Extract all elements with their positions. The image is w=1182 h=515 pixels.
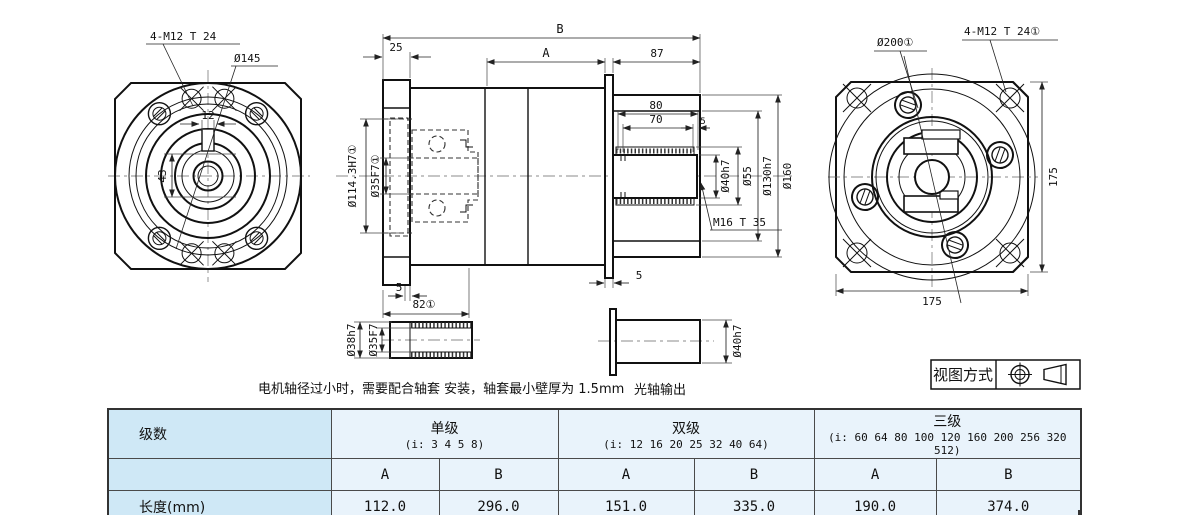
dim-keyway-width: 12 <box>201 109 214 122</box>
bushing-detail: Ø38h7 Ø35F7 <box>345 322 480 358</box>
front-diameter-callout: Ø145 <box>234 52 261 65</box>
dim-d40: Ø40h7 <box>719 159 732 192</box>
dim-d35-bushing: Ø35F7 <box>367 323 380 356</box>
note-text: 电机轴径过小时，需要配合轴套 安装，轴套最小壁厚为 1.5mm <box>258 381 624 397</box>
dim-5-disc: 5 <box>636 269 643 282</box>
view-method-label: 视图方式 <box>933 366 993 384</box>
dim-rear-length: 87 <box>650 47 663 60</box>
group-ratios: (i: 3 4 5 8) <box>333 438 557 451</box>
subheader-cell: B <box>439 459 558 491</box>
group-name: 双级 <box>560 418 813 438</box>
dim-mid-length: A <box>542 46 550 60</box>
group-ratios: (i: 12 16 20 25 32 40 64) <box>560 438 813 451</box>
dim-height-175: 175 <box>1047 167 1060 187</box>
dim-5-flange: 5 <box>396 281 403 294</box>
dim-d114: Ø114.3H7① <box>346 144 359 207</box>
dim-width-175: 175 <box>922 295 942 308</box>
dim-d130: Ø130h7 <box>761 156 774 196</box>
dim-d40-shaft: Ø40h7 <box>731 324 744 357</box>
hidden-internals <box>383 118 478 236</box>
technical-drawing-canvas: 12 43 4-M12 T 24 Ø145 <box>0 0 1182 406</box>
subheader-cell: B <box>936 459 1081 491</box>
dim-d38: Ø38h7 <box>345 323 358 356</box>
dim-5-right: 5 <box>700 117 705 127</box>
dim-total-length: B <box>556 22 563 36</box>
shaft-caption: 光轴输出 <box>634 382 686 398</box>
rear-bolt-callout: 4-M12 T 24① <box>964 25 1040 38</box>
group-ratios: (i: 60 64 80 100 120 160 200 256 320 512… <box>816 431 1080 457</box>
group-single-stage: 单级 (i: 3 4 5 8) <box>331 409 558 459</box>
dim-d35: Ø35F7① <box>369 154 382 197</box>
group-double-stage: 双级 (i: 12 16 20 25 32 40 64) <box>558 409 814 459</box>
subheader-cell: A <box>558 459 694 491</box>
dim-d55: Ø55 <box>741 166 754 186</box>
side-view: B 25 A 87 80 70 5 Ø40h7 Ø55 Ø <box>336 22 795 318</box>
group-name: 单级 <box>333 418 557 438</box>
front-view: 12 43 4-M12 T 24 Ø145 <box>108 30 310 282</box>
group-name: 三级 <box>816 411 1080 431</box>
table-next-row-partial <box>107 510 1080 515</box>
table-group-header-row: 级数 单级 (i: 3 4 5 8) 双级 (i: 12 16 20 25 32… <box>108 409 1081 459</box>
dim-d160: Ø160 <box>781 163 794 190</box>
dim-hub-height: 43 <box>156 169 169 182</box>
dim-80: 80 <box>649 99 662 112</box>
rear-view: Ø200① 4-M12 T 24① 175 175 <box>828 25 1060 308</box>
front-bolt-callout: 4-M12 T 24 <box>150 30 217 43</box>
subheader-cell: A <box>814 459 936 491</box>
stage-header-cell: 级数 <box>108 409 331 459</box>
dim-flange-width: 25 <box>389 41 402 54</box>
empty-cell <box>108 459 331 491</box>
m16-callout: M16 T 35 <box>713 216 766 229</box>
group-triple-stage: 三级 (i: 60 64 80 100 120 160 200 256 320 … <box>814 409 1081 459</box>
dim-82: 82① <box>412 298 435 311</box>
rear-d200-callout: Ø200① <box>877 36 913 49</box>
table-subheader-row: A B A B A B <box>108 459 1081 491</box>
subheader-cell: B <box>694 459 814 491</box>
view-method-box: 视图方式 <box>931 360 1080 389</box>
spec-table: 级数 单级 (i: 3 4 5 8) 双级 (i: 12 16 20 25 32… <box>107 408 1082 515</box>
drawing-page: 12 43 4-M12 T 24 Ø145 <box>0 0 1182 515</box>
dim-70: 70 <box>649 113 662 126</box>
subheader-cell: A <box>331 459 439 491</box>
